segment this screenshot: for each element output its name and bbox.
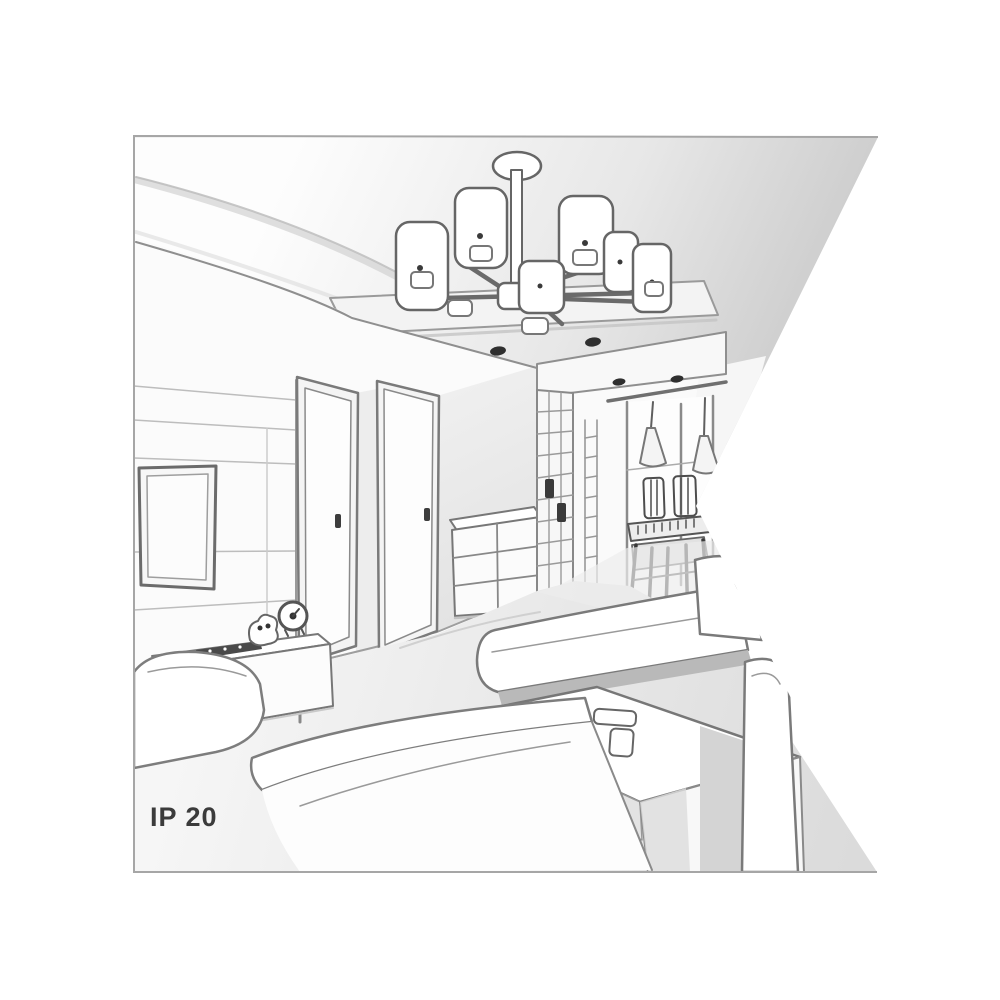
flat-screen-tv xyxy=(139,466,216,589)
door-handle-icon xyxy=(424,508,430,521)
hallway-closet xyxy=(537,390,573,593)
closet-handle-icon xyxy=(545,479,554,498)
interior-door-right xyxy=(377,381,439,653)
sofa-right xyxy=(695,556,762,640)
ip-rating-label: IP 20 xyxy=(150,802,270,838)
plate xyxy=(593,709,636,727)
lampshade xyxy=(633,244,671,312)
mug xyxy=(609,728,634,757)
tv-screen xyxy=(147,474,208,580)
interior-sketch-image: IP 20 xyxy=(0,0,1000,1000)
room-sketch xyxy=(0,0,1000,1000)
door-handle-icon xyxy=(335,514,341,528)
closet-handle-icon xyxy=(557,503,566,522)
